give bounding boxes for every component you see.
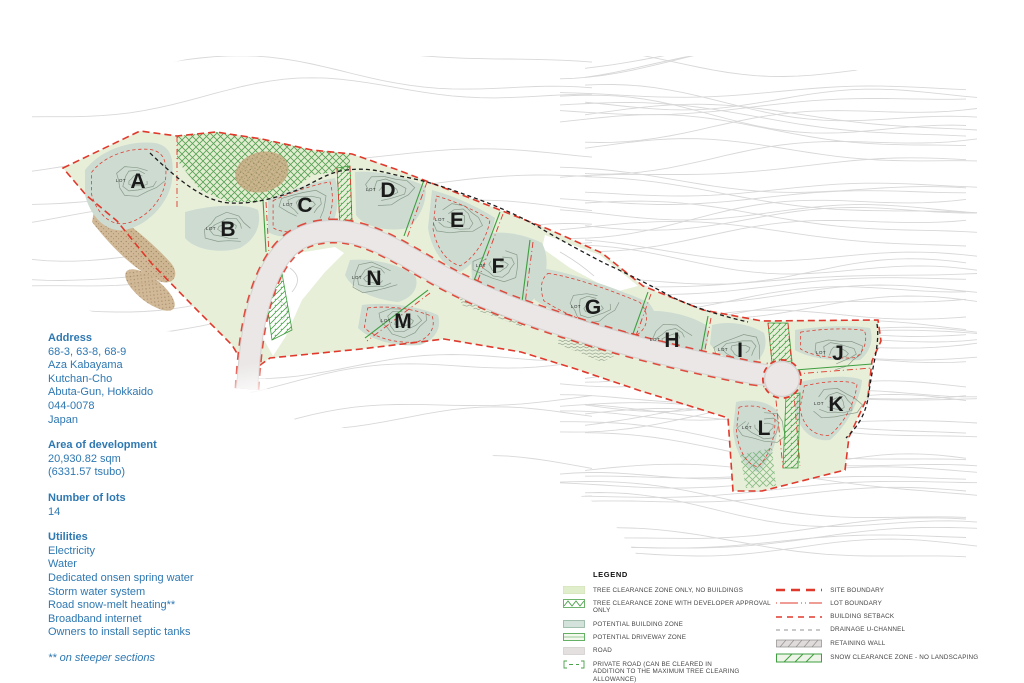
lot-prefix: LOT bbox=[381, 318, 391, 323]
tree-clearance-developer-swatch bbox=[563, 599, 585, 608]
lot-letter-b: B bbox=[220, 218, 235, 241]
legend-item: TREE CLEARANCE ZONE ONLY, NO BUILDINGS bbox=[563, 586, 776, 594]
lot-boundary-swatch bbox=[776, 599, 822, 607]
area-block: Area of development 20,930.82 sqm (6331.… bbox=[48, 439, 278, 480]
private-road-swatch bbox=[563, 660, 585, 669]
building-setback-swatch bbox=[776, 613, 822, 621]
lot-prefix: LOT bbox=[571, 304, 581, 309]
area-line: 20,930.82 sqm bbox=[48, 453, 278, 467]
legend-item: BUILDING SETBACK bbox=[776, 613, 1003, 621]
info-panel: Address 68-3, 63-8, 68-9 Aza Kabayama Ku… bbox=[48, 332, 278, 665]
lot-prefix: LOT bbox=[718, 347, 728, 352]
lot-letter-g: G bbox=[585, 296, 601, 319]
legend-label: TREE CLEARANCE ZONE ONLY, NO BUILDINGS bbox=[593, 586, 743, 594]
legend: LEGEND TREE CLEARANCE ZONE ONLY, NO BUIL… bbox=[563, 570, 1003, 683]
utility-line: Road snow-melt heating** bbox=[48, 599, 278, 613]
lot-letter-k: K bbox=[828, 393, 843, 416]
lot-prefix: LOT bbox=[650, 337, 660, 342]
address-line: Abuta-Gun, Hokkaido bbox=[48, 386, 278, 400]
legend-label: SITE BOUNDARY bbox=[830, 586, 884, 594]
utility-line: Broadband internet bbox=[48, 613, 278, 627]
snow-clearance-zone-swatch bbox=[776, 653, 822, 663]
utility-line: Dedicated onsen spring water bbox=[48, 572, 278, 586]
utility-line: Owners to install septic tanks bbox=[48, 626, 278, 640]
legend-item: SNOW CLEARANCE ZONE - NO LANDSCAPING bbox=[776, 653, 1003, 663]
legend-title: LEGEND bbox=[593, 570, 1003, 579]
legend-label: TREE CLEARANCE ZONE WITH DEVELOPER APPRO… bbox=[593, 599, 776, 615]
potential-driveway-zone-swatch bbox=[563, 633, 585, 641]
legend-item: DRAINAGE U-CHANNEL bbox=[776, 626, 1003, 634]
legend-label: LOT BOUNDARY bbox=[830, 599, 882, 607]
address-block: Address 68-3, 63-8, 68-9 Aza Kabayama Ku… bbox=[48, 332, 278, 427]
utility-line: Storm water system bbox=[48, 586, 278, 600]
lot-prefix: LOT bbox=[283, 202, 293, 207]
utility-line: Electricity bbox=[48, 545, 278, 559]
lot-prefix: LOT bbox=[352, 275, 362, 280]
retaining-wall-swatch bbox=[776, 639, 822, 648]
tree-clearance-zone-swatch bbox=[563, 586, 585, 594]
lot-count-block: Number of lots 14 bbox=[48, 492, 278, 519]
address-title: Address bbox=[48, 332, 278, 346]
lot-prefix: LOT bbox=[435, 217, 445, 222]
lot-letter-i: I bbox=[737, 339, 743, 362]
lot-prefix: LOT bbox=[476, 263, 486, 268]
lot-count-title: Number of lots bbox=[48, 492, 278, 506]
area-line: (6331.57 tsubo) bbox=[48, 466, 278, 480]
utilities-title: Utilities bbox=[48, 531, 278, 545]
legend-label: ROAD bbox=[593, 647, 612, 655]
address-line: 044-0078 bbox=[48, 400, 278, 414]
drainage-u-channel-swatch bbox=[776, 626, 822, 634]
lot-letter-f: F bbox=[492, 255, 505, 278]
legend-label: POTENTIAL BUILDING ZONE bbox=[593, 620, 683, 628]
address-line: 68-3, 63-8, 68-9 bbox=[48, 346, 278, 360]
lot-prefix: LOT bbox=[742, 425, 752, 430]
legend-item: ROAD bbox=[563, 647, 776, 655]
footnote: ** on steeper sections bbox=[48, 652, 278, 666]
lot-prefix: LOT bbox=[206, 226, 216, 231]
legend-item: POTENTIAL DRIVEWAY ZONE bbox=[563, 633, 776, 641]
legend-item: LOT BOUNDARY bbox=[776, 599, 1003, 607]
lot-letter-m: M bbox=[394, 310, 412, 333]
lot-letter-n: N bbox=[366, 267, 381, 290]
legend-right-column: SITE BOUNDARY LOT BOUNDARY BUILDING SETB… bbox=[776, 586, 1003, 683]
legend-label: DRAINAGE U-CHANNEL bbox=[830, 626, 905, 634]
legend-item: TREE CLEARANCE ZONE WITH DEVELOPER APPRO… bbox=[563, 599, 776, 615]
road-swatch bbox=[563, 647, 585, 655]
legend-label: SNOW CLEARANCE ZONE - NO LANDSCAPING bbox=[830, 653, 978, 661]
area-title: Area of development bbox=[48, 439, 278, 453]
legend-label: RETAINING WALL bbox=[830, 639, 885, 647]
potential-building-zone-swatch bbox=[563, 620, 585, 628]
site-plan-page: A B C D E F G H I J K L M N LOT LOT LOT … bbox=[0, 0, 1024, 683]
lot-letter-c: C bbox=[297, 194, 312, 217]
legend-item: POTENTIAL BUILDING ZONE bbox=[563, 620, 776, 628]
legend-item: RETAINING WALL bbox=[776, 639, 1003, 648]
lot-prefix: LOT bbox=[814, 401, 824, 406]
legend-left-column: TREE CLEARANCE ZONE ONLY, NO BUILDINGS T… bbox=[563, 586, 776, 683]
legend-item: SITE BOUNDARY bbox=[776, 586, 1003, 594]
lot-prefix: LOT bbox=[116, 178, 126, 183]
legend-item: PRIVATE ROAD (CAN BE CLEARED IN ADDITION… bbox=[563, 660, 776, 683]
lot-letter-e: E bbox=[450, 209, 464, 232]
legend-label: POTENTIAL DRIVEWAY ZONE bbox=[593, 633, 686, 641]
legend-label: PRIVATE ROAD (CAN BE CLEARED IN ADDITION… bbox=[593, 660, 743, 683]
lot-prefix: LOT bbox=[816, 350, 826, 355]
lot-prefix: LOT bbox=[366, 187, 376, 192]
lot-letter-d: D bbox=[380, 179, 395, 202]
legend-label: BUILDING SETBACK bbox=[830, 613, 894, 621]
address-line: Aza Kabayama bbox=[48, 359, 278, 373]
site-boundary-swatch bbox=[776, 586, 822, 594]
lot-letter-h: H bbox=[664, 329, 679, 352]
utilities-block: Utilities Electricity Water Dedicated on… bbox=[48, 531, 278, 640]
lot-letter-l: L bbox=[758, 417, 771, 440]
lot-count-value: 14 bbox=[48, 506, 278, 520]
address-line: Kutchan-Cho bbox=[48, 373, 278, 387]
address-line: Japan bbox=[48, 414, 278, 428]
lot-letter-j: J bbox=[832, 342, 844, 365]
utility-line: Water bbox=[48, 558, 278, 572]
lot-letter-a: A bbox=[130, 170, 145, 193]
